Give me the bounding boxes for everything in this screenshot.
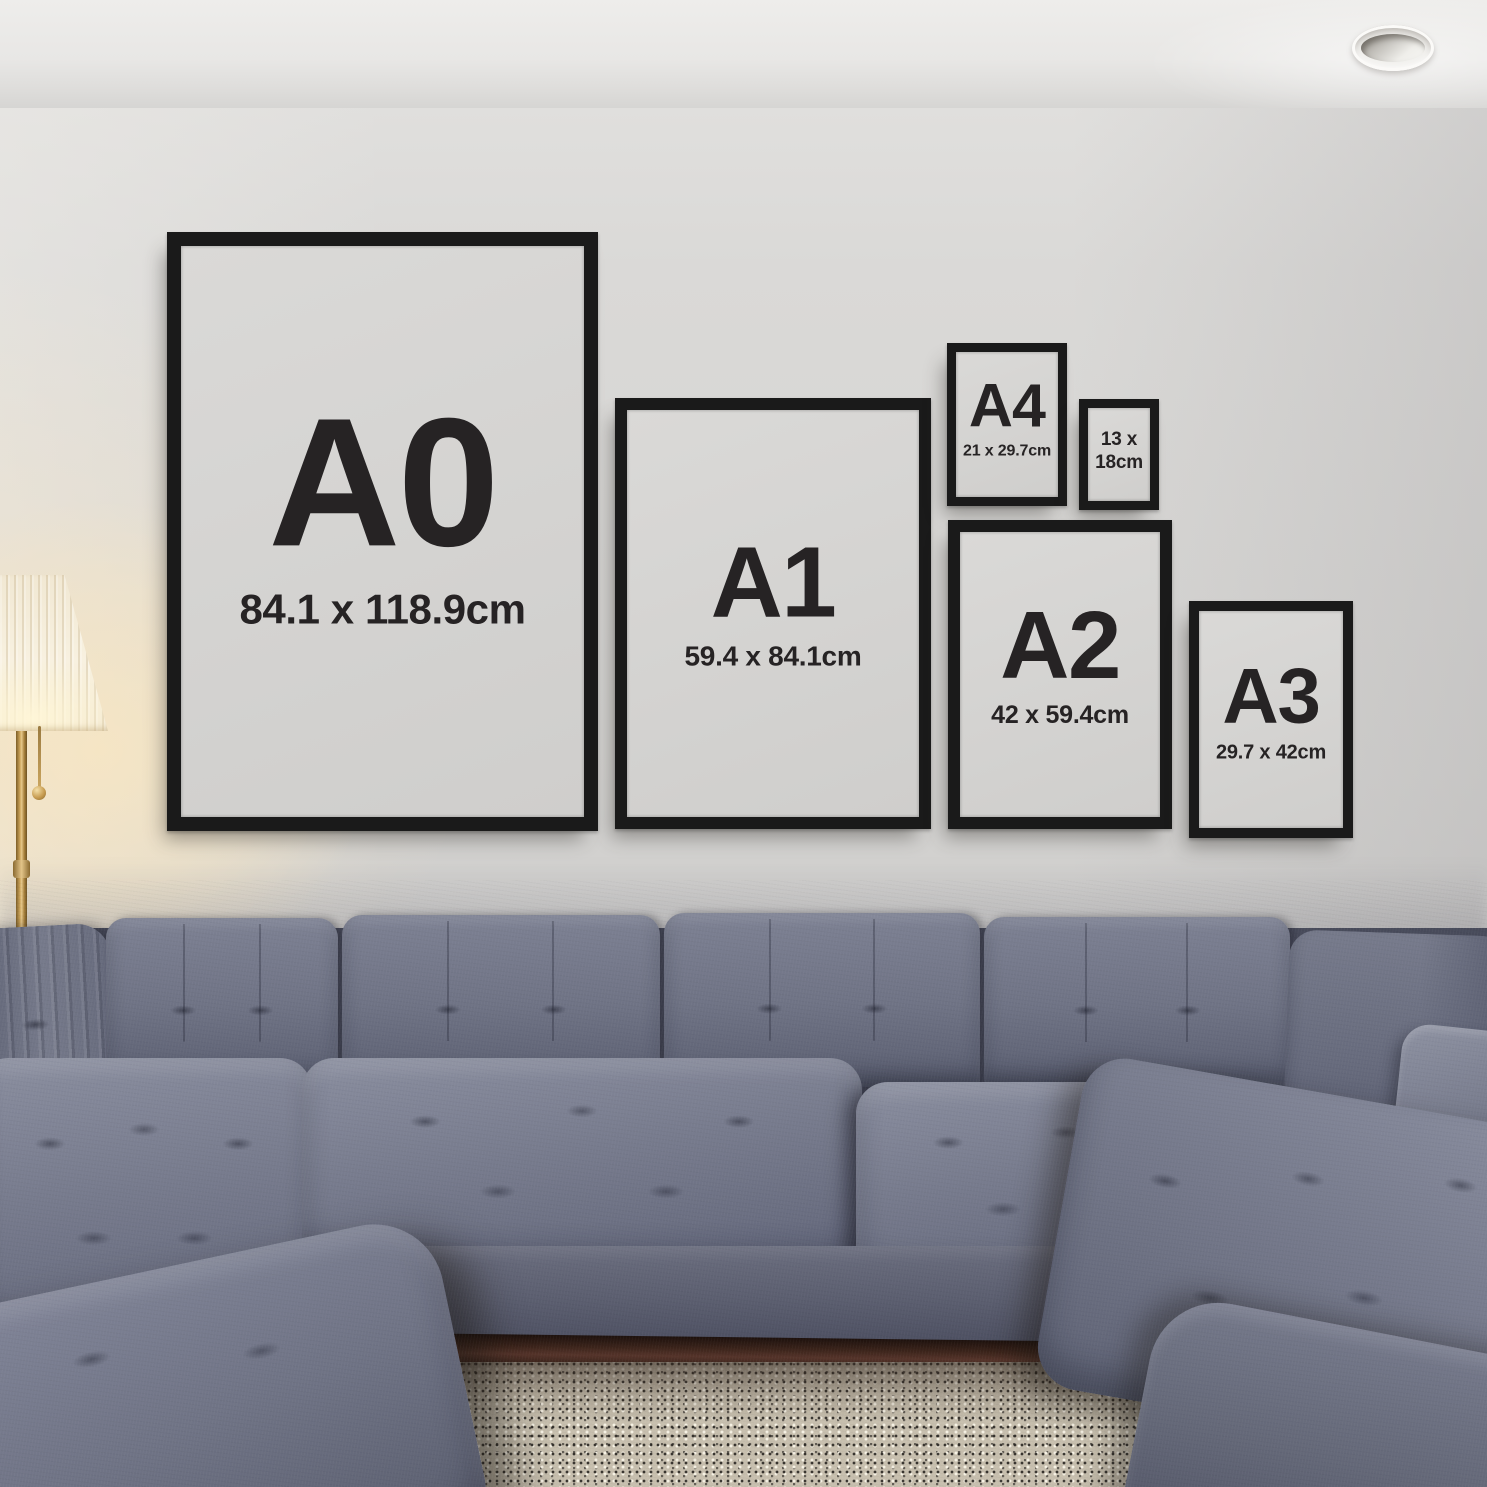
living-room-scene: A0 84.1 x 118.9cm A1 59.4 x 84.1cm A4 21…: [0, 0, 1487, 1487]
